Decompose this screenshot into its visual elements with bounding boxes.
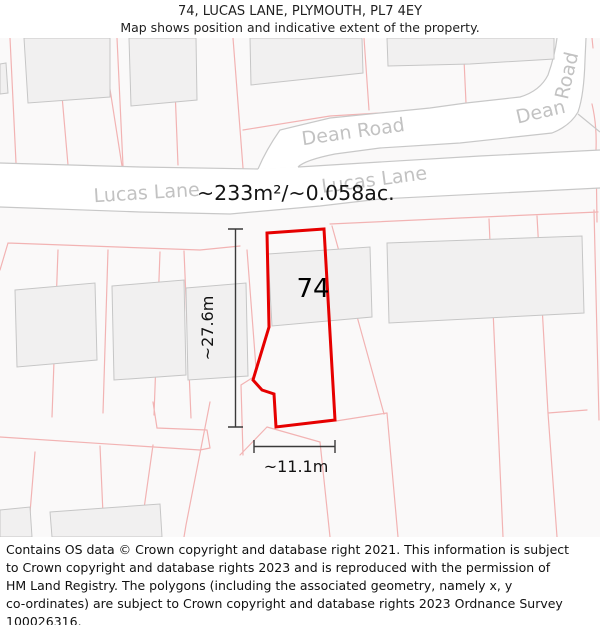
- dimension-label-height: ~27.6m: [198, 296, 217, 361]
- area-label: ~233m²/~0.058ac.: [197, 181, 395, 205]
- copyright-line: HM Land Registry. The polygons (includin…: [6, 577, 596, 595]
- copyright-line: to Crown copyright and database rights 2…: [6, 559, 596, 577]
- page: 74, LUCAS LANE, PLYMOUTH, PL7 4EY Map sh…: [0, 0, 600, 625]
- copyright-notice: Contains OS data © Crown copyright and d…: [6, 541, 596, 625]
- copyright-line: Contains OS data © Crown copyright and d…: [6, 541, 596, 559]
- map-header: 74, LUCAS LANE, PLYMOUTH, PL7 4EY Map sh…: [0, 0, 600, 36]
- property-number-label: 74: [296, 274, 329, 304]
- page-title: 74, LUCAS LANE, PLYMOUTH, PL7 4EY: [0, 4, 600, 20]
- dimension-label-width: ~11.1m: [264, 457, 329, 476]
- page-subtitle: Map shows position and indicative extent…: [0, 20, 600, 36]
- map-canvas: Lucas Lane Lucas Lane Dean Road Dean Roa…: [0, 38, 600, 537]
- copyright-line: 100026316.: [6, 613, 596, 625]
- copyright-line: co-ordinates) are subject to Crown copyr…: [6, 595, 596, 613]
